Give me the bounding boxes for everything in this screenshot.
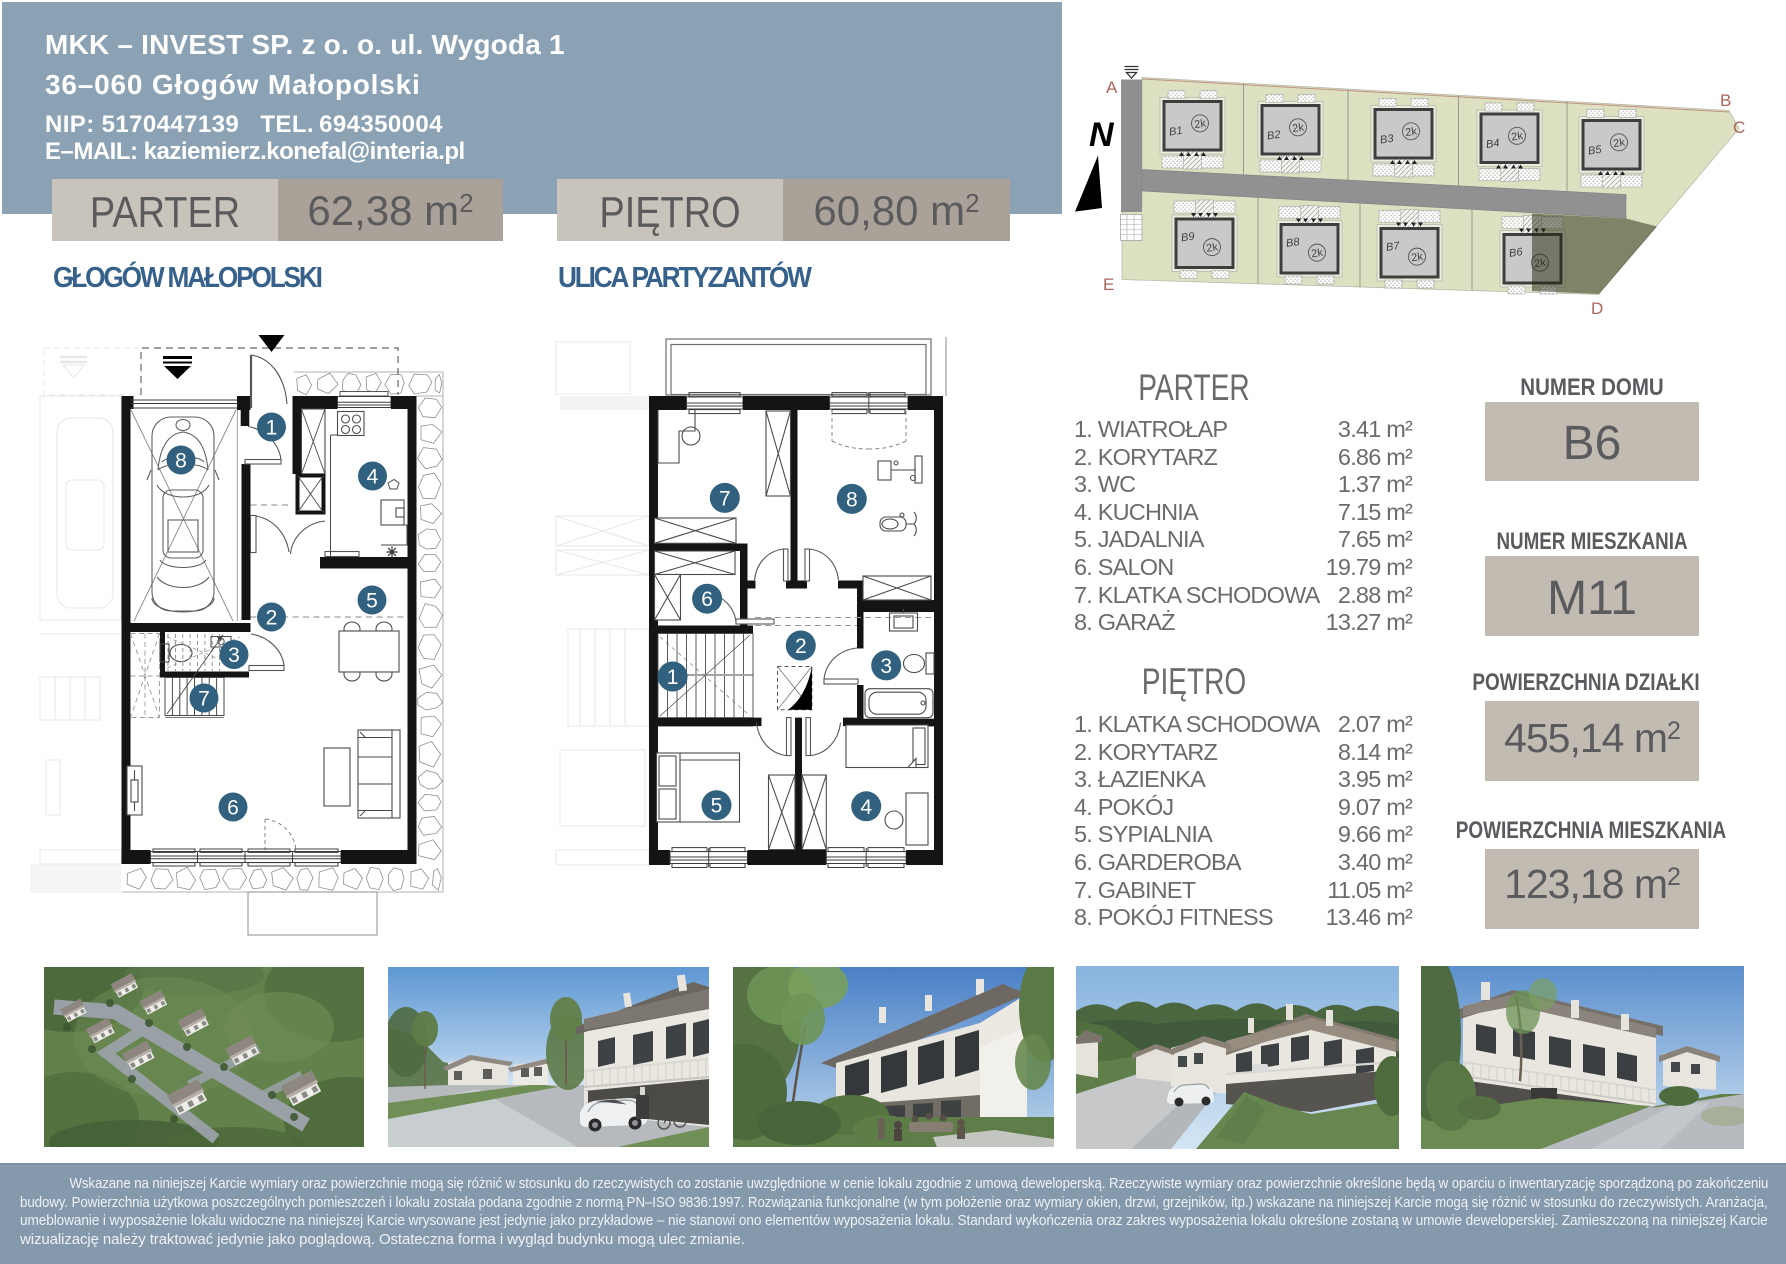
svg-text:2k: 2k <box>1613 136 1627 150</box>
svg-text:8: 8 <box>846 488 858 511</box>
svg-text:B9: B9 <box>1180 231 1195 245</box>
svg-text:B2: B2 <box>1266 129 1281 143</box>
svg-text:2k: 2k <box>1411 251 1425 265</box>
svg-text:2k: 2k <box>1206 241 1220 255</box>
svg-text:2k: 2k <box>1405 125 1419 139</box>
svg-text:B7: B7 <box>1385 240 1401 254</box>
svg-text:B5: B5 <box>1587 144 1603 158</box>
svg-text:5: 5 <box>711 795 723 818</box>
svg-text:1: 1 <box>266 417 278 440</box>
svg-text:2k: 2k <box>1511 130 1525 144</box>
svg-text:B8: B8 <box>1285 236 1301 250</box>
svg-text:2k: 2k <box>1311 247 1325 261</box>
svg-text:7: 7 <box>198 688 210 711</box>
svg-text:1: 1 <box>667 666 679 689</box>
svg-text:E: E <box>1103 275 1114 294</box>
svg-text:7: 7 <box>719 487 731 510</box>
svg-text:2k: 2k <box>1194 117 1208 131</box>
svg-text:B4: B4 <box>1485 137 1500 151</box>
svg-text:2k: 2k <box>1292 121 1306 135</box>
svg-text:C: C <box>1733 118 1745 137</box>
svg-text:4: 4 <box>860 796 872 819</box>
svg-text:B: B <box>1720 91 1731 110</box>
svg-text:2: 2 <box>266 607 278 630</box>
svg-text:N: N <box>1089 116 1115 154</box>
svg-text:B3: B3 <box>1379 133 1395 147</box>
svg-text:3: 3 <box>880 655 892 678</box>
svg-text:6: 6 <box>227 797 239 820</box>
svg-text:6: 6 <box>701 588 713 611</box>
svg-text:5: 5 <box>366 590 378 613</box>
svg-text:B6: B6 <box>1508 246 1524 260</box>
svg-text:8: 8 <box>175 450 187 473</box>
svg-text:D: D <box>1591 299 1603 318</box>
svg-text:A: A <box>1106 78 1118 97</box>
svg-text:3: 3 <box>228 644 240 667</box>
svg-text:B1: B1 <box>1168 125 1183 139</box>
svg-text:4: 4 <box>367 466 379 489</box>
svg-text:2: 2 <box>795 635 807 658</box>
